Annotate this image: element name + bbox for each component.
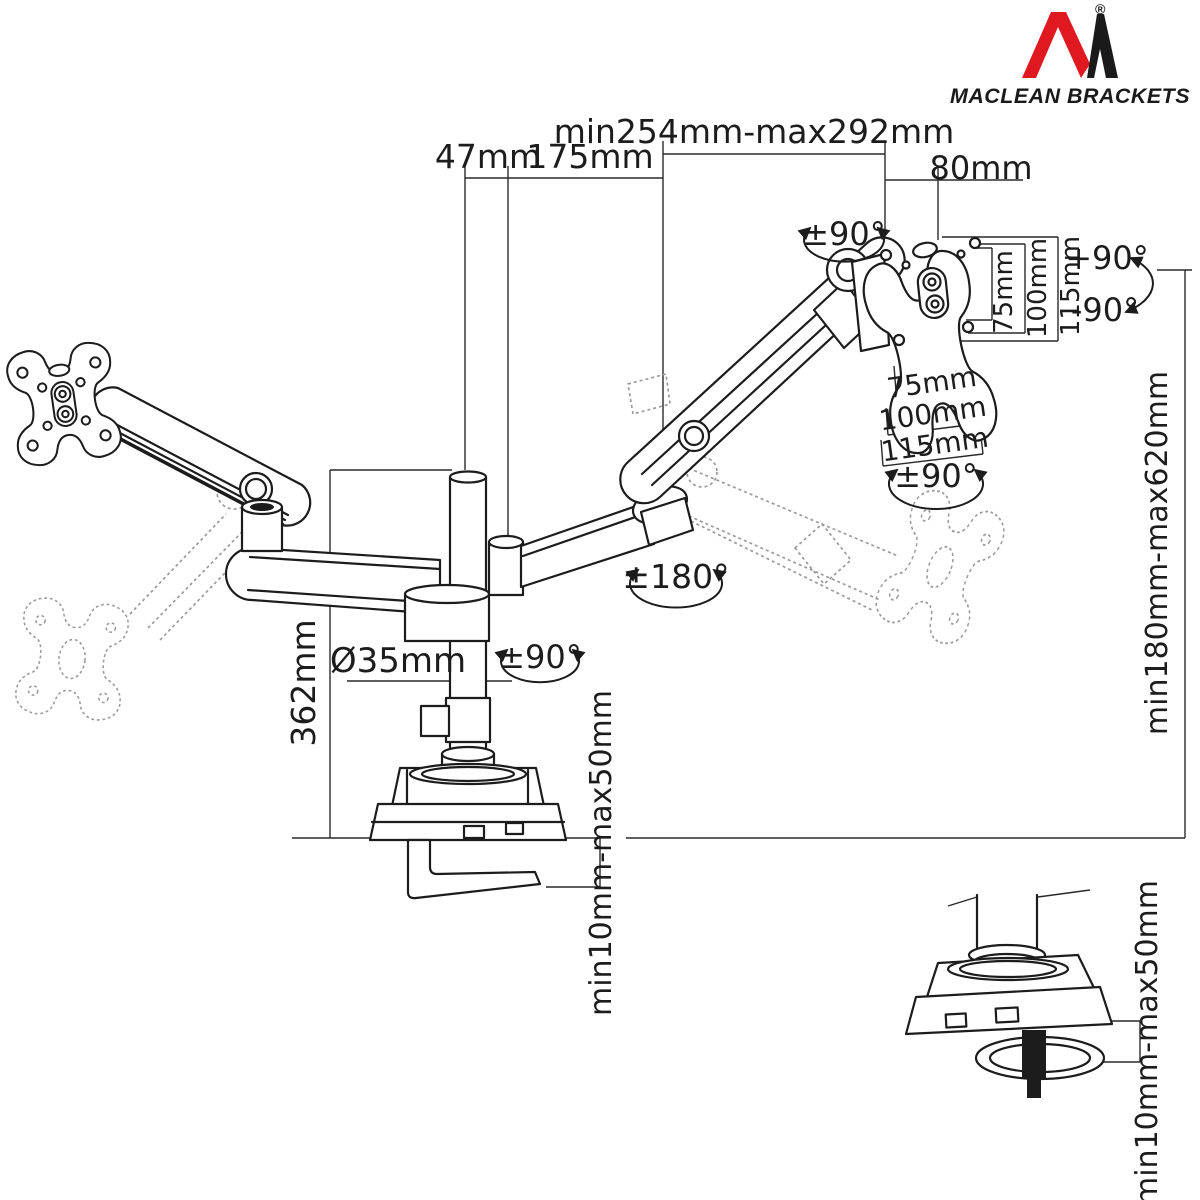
label-vesa-v-115: 115mm [1056, 236, 1086, 336]
label-vesa-v-100: 100mm [1023, 238, 1053, 338]
desk-clamp [370, 747, 566, 898]
mount-assembly [5, 237, 1002, 898]
label-pole-diameter: Ø35mm [330, 641, 466, 681]
ghost-left-vesa-plate [14, 596, 130, 722]
monitor-mount-diagram: ® MACLEAN BRACKETS 47mm 175mm min254mm-m… [0, 0, 1200, 1200]
pole-top-cap [450, 472, 486, 483]
label-width-range: min254mm-max292mm [554, 112, 955, 151]
label-pole-swivel: ±90° [498, 638, 582, 676]
logo-m-black [1087, 14, 1118, 78]
pole-collar-right-top [489, 536, 523, 548]
pole-collar-left-top [405, 585, 489, 603]
label-height-range: min180mm-max620mm [1140, 371, 1175, 735]
label-clamp-thickness-detail: min10mm-max50mm [1130, 880, 1165, 1200]
logo-wordmark: MACLEAN BRACKETS [950, 85, 1190, 108]
label-width-80: 80mm [929, 149, 1032, 187]
logo-registered-mark: ® [1095, 1, 1106, 17]
label-swivel-top: ±90° [802, 215, 886, 253]
logo-m-red [1022, 12, 1090, 78]
label-pole-height: 362mm [284, 619, 323, 746]
label-vesa-rotation: ±90° [894, 457, 978, 495]
detail-clamp-bolt [1022, 1030, 1046, 1078]
clamp-detail-view [906, 890, 1112, 1098]
pole-cable-clip [446, 698, 490, 742]
label-arm-rotation: ±180° [622, 557, 729, 596]
brand-logo: ® MACLEAN BRACKETS [950, 1, 1190, 108]
pole-collar-right [489, 542, 523, 595]
label-vesa-v-75: 75mm [989, 250, 1019, 334]
clamp-c-bracket [408, 840, 540, 898]
technical-drawing-page: ® MACLEAN BRACKETS 47mm 175mm min254mm-m… [0, 0, 1200, 1200]
label-clamp-thickness: min10mm-max50mm [584, 690, 619, 1016]
label-width-47: 47mm [435, 137, 541, 176]
